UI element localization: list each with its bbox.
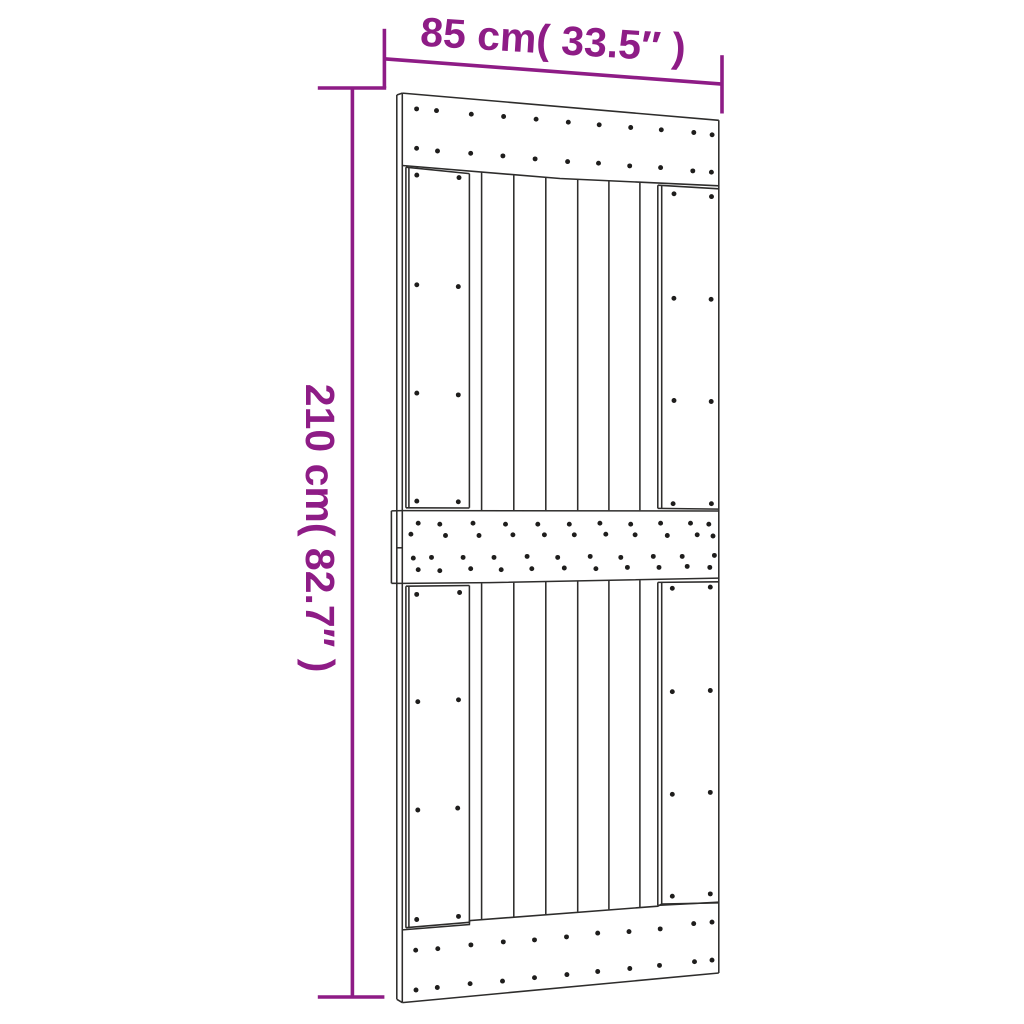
svg-text:85 cm( 33.5″ ): 85 cm( 33.5″ ) (419, 9, 687, 71)
svg-text:210 cm( 82.7″ ): 210 cm( 82.7″ ) (297, 384, 343, 673)
